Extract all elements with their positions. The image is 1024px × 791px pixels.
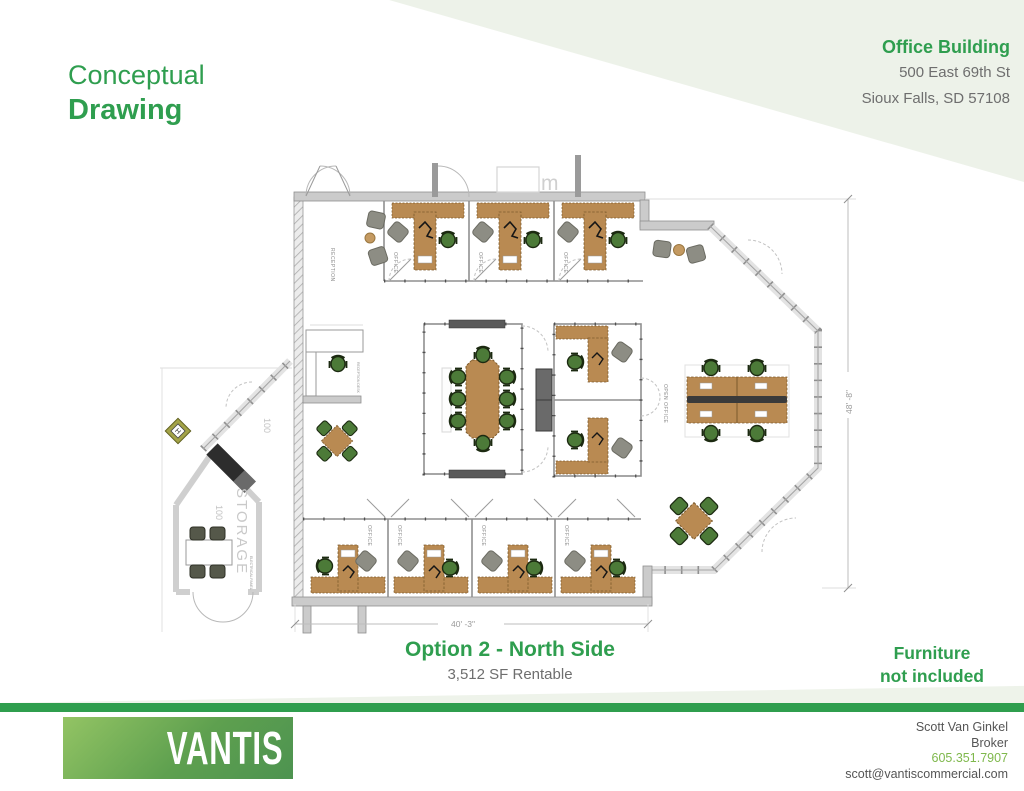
flyer-page: Conceptual Drawing Office Building 500 E…	[0, 0, 1024, 791]
office-room: OFFICE	[471, 203, 549, 281]
bottom-office-row: OFFICE OFFICE OFFICE	[303, 499, 641, 597]
fixture-glyph: m	[541, 172, 559, 195]
furniture-note-line-2: not included	[847, 665, 1017, 688]
top-office-row: OFFICE OFFICE OFFICE	[384, 201, 643, 281]
open-office: OPEN OFFICE	[662, 360, 789, 442]
markerboard	[449, 320, 505, 328]
storage-table	[186, 527, 232, 578]
footer-divider-bar	[0, 703, 1024, 712]
vantis-logo-text: VANTIS	[167, 721, 283, 775]
office-label: OFFICE	[396, 525, 402, 546]
office-label: OFFICE	[477, 252, 483, 273]
office-room: OFFICE	[478, 525, 552, 593]
break-table	[316, 420, 358, 462]
office-label: OFFICE	[563, 525, 569, 546]
office-room: OFFICE	[394, 525, 468, 593]
contact-phone[interactable]: 605.351.7907	[845, 751, 1008, 767]
office-label: OFFICE	[480, 525, 486, 546]
furniture-note-line-1: Furniture	[847, 642, 1017, 665]
wall-stub	[575, 155, 581, 197]
width-dimension: 40' -3"	[451, 619, 475, 629]
room-number: 100	[262, 418, 272, 433]
electrical-panel-label: ELECTRICAL PANEL	[249, 556, 253, 590]
conference-table	[466, 360, 499, 438]
option-title: Option 2 - North Side	[330, 638, 690, 662]
rentable-area: 3,512 SF Rentable	[330, 666, 690, 683]
office-room: OFFICE	[311, 525, 385, 593]
contact-email[interactable]: scott@vantiscommercial.com	[845, 767, 1008, 783]
office-room: OFFICE	[386, 203, 464, 281]
storage-cabinet	[536, 369, 552, 431]
office-label: OFFICE	[366, 525, 372, 546]
open-office-label: OPEN OFFICE	[662, 384, 668, 424]
storage-label: STORAGE	[233, 488, 250, 575]
furniture-note: Furniture not included	[847, 642, 1017, 688]
keynote-marker: H	[165, 418, 190, 443]
conference-room	[424, 320, 548, 478]
storage-suite: H STORAGE 100 100 ELECTRICAL PANEL	[160, 361, 292, 632]
markerboard	[449, 470, 505, 478]
room-number: 100	[214, 505, 224, 520]
vantis-logo: VANTIS	[63, 717, 293, 779]
lounge-seating	[652, 240, 706, 264]
office-label: OFFICE	[562, 252, 568, 273]
contact-name: Scott Van Ginkel	[845, 720, 1008, 736]
storage-ramp	[206, 443, 255, 492]
office-room: OFFICE	[556, 203, 634, 281]
fixture-outline	[497, 167, 539, 192]
existing-west-wall	[294, 197, 303, 602]
office-room: OFFICE	[561, 525, 635, 593]
reception-label: RECEPTION	[329, 248, 335, 282]
office-label: OFFICE	[392, 252, 398, 273]
break-table	[669, 496, 719, 546]
contact-role: Broker	[845, 736, 1008, 752]
broker-contact-block: Scott Van Ginkel Broker 605.351.7907 sco…	[845, 720, 1008, 782]
plan-caption: Option 2 - North Side 3,512 SF Rentable	[330, 638, 690, 683]
reception-area: RECEPTION RECEPTION DESK	[303, 210, 389, 462]
side-offices	[554, 324, 660, 476]
reception-desk-label: RECEPTION DESK	[356, 362, 360, 394]
height-dimension: 48' -8"	[844, 390, 854, 414]
